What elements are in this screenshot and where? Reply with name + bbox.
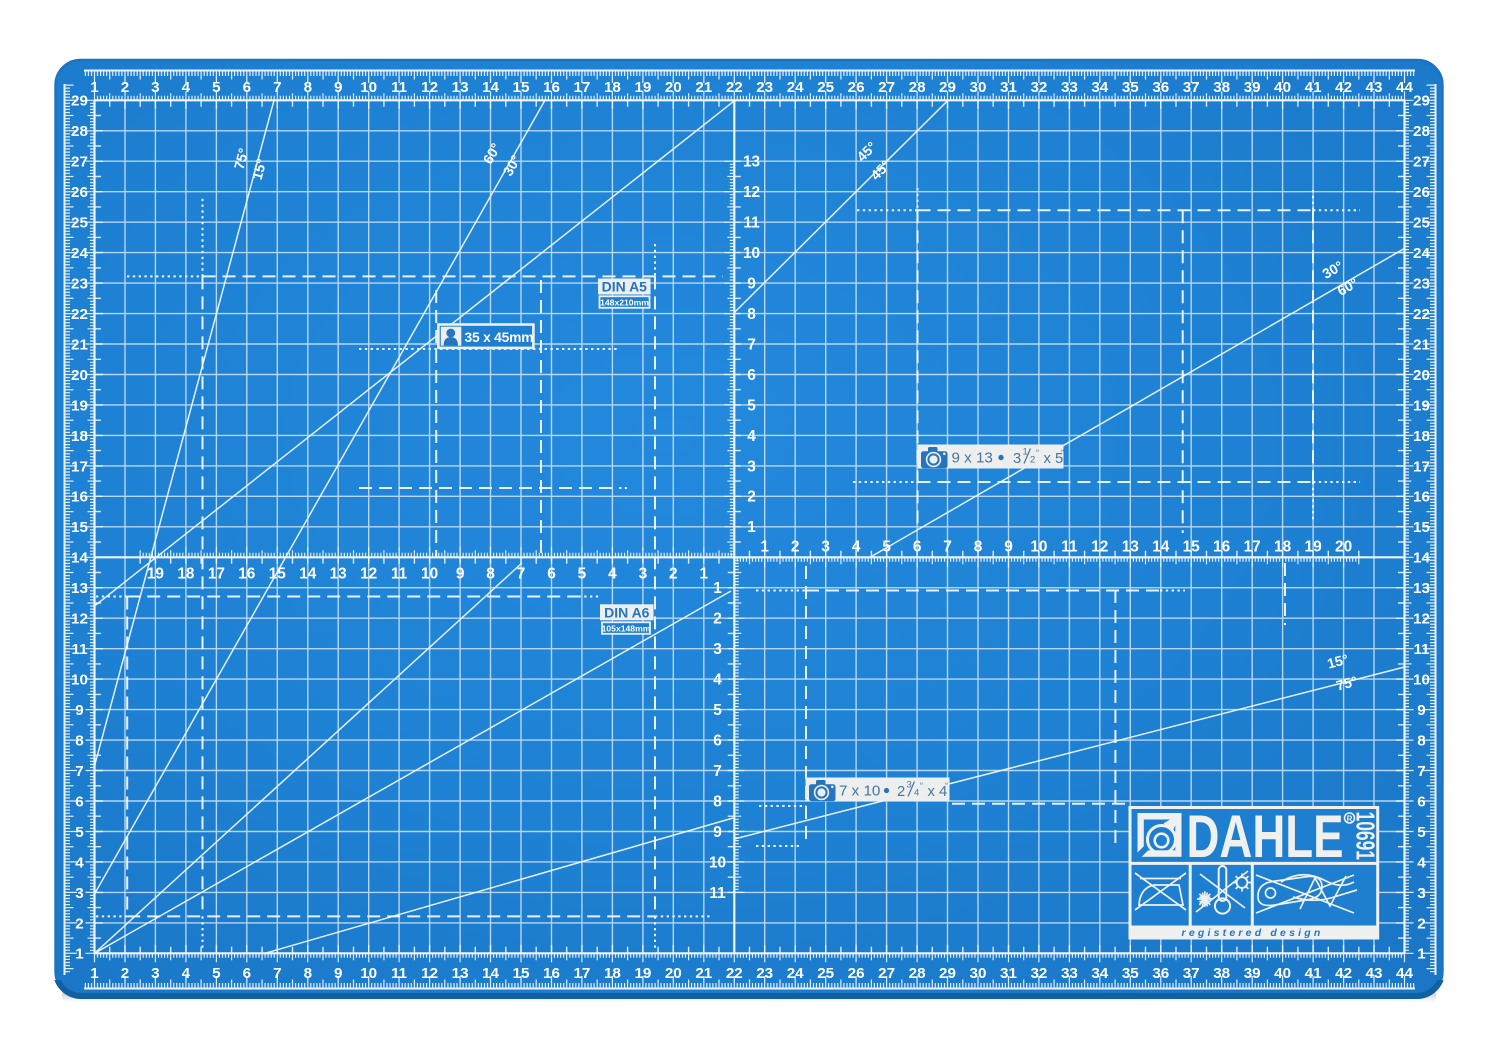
svg-text:148x210mm: 148x210mm [600, 297, 649, 307]
svg-text:4: 4 [914, 788, 919, 799]
svg-text:2: 2 [1030, 455, 1035, 466]
svg-text:“: “ [945, 781, 948, 791]
svg-text:3: 3 [1013, 451, 1021, 467]
svg-text:DIN A6: DIN A6 [604, 604, 650, 620]
svg-text:10691: 10691 [1351, 812, 1381, 861]
svg-text:105x148mm: 105x148mm [602, 623, 651, 633]
svg-text:“: “ [1061, 448, 1064, 458]
svg-text:registered design: registered design [1182, 927, 1324, 939]
svg-text:DIN A5: DIN A5 [602, 279, 648, 295]
svg-text:2: 2 [897, 784, 905, 800]
svg-text:“: “ [920, 781, 923, 791]
svg-text:35 x 45mm: 35 x 45mm [465, 330, 534, 345]
svg-text:9 x 13: 9 x 13 [952, 450, 993, 467]
svg-text:DAHLE: DAHLE [1187, 803, 1344, 870]
svg-text:7 x 10: 7 x 10 [839, 783, 880, 800]
svg-text:“: “ [1036, 448, 1039, 458]
